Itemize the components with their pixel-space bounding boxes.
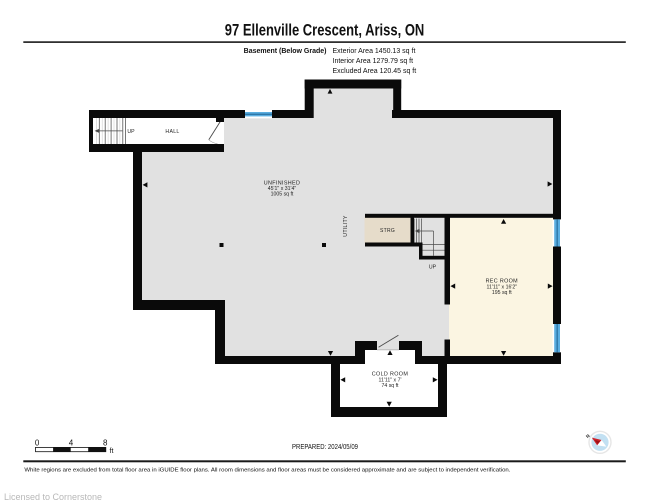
- svg-text:Excluded Area 120.45 sq ft: Excluded Area 120.45 sq ft: [333, 68, 417, 75]
- svg-text:UP: UP: [127, 129, 135, 135]
- svg-text:UTILITY: UTILITY: [343, 215, 349, 237]
- svg-text:4: 4: [69, 438, 74, 447]
- svg-text:0: 0: [35, 438, 40, 447]
- svg-text:Basement (Below Grade): Basement (Below Grade): [244, 48, 327, 55]
- svg-text:UP: UP: [429, 264, 437, 270]
- svg-text:ft: ft: [110, 448, 114, 455]
- svg-text:Interior Area 1279.79 sq ft: Interior Area 1279.79 sq ft: [333, 58, 414, 65]
- svg-text:PREPARED: 2024/05/09: PREPARED: 2024/05/09: [292, 444, 358, 451]
- svg-text:1005 sq ft: 1005 sq ft: [271, 192, 294, 198]
- svg-text:White regions are excluded fro: White regions are excluded from total fl…: [24, 468, 510, 474]
- svg-text:74 sq ft: 74 sq ft: [381, 383, 399, 389]
- svg-text:Licensed to Cornerstone: Licensed to Cornerstone: [4, 492, 102, 502]
- svg-text:HALL: HALL: [165, 129, 179, 135]
- svg-text:97 Ellenville Crescent, Ariss,: 97 Ellenville Crescent, Ariss, ON: [225, 21, 424, 39]
- svg-text:195 sq ft: 195 sq ft: [492, 290, 512, 296]
- svg-text:Exterior Area 1450.13 sq ft: Exterior Area 1450.13 sq ft: [333, 48, 416, 55]
- svg-text:8: 8: [103, 438, 108, 447]
- svg-text:STRG: STRG: [380, 228, 395, 234]
